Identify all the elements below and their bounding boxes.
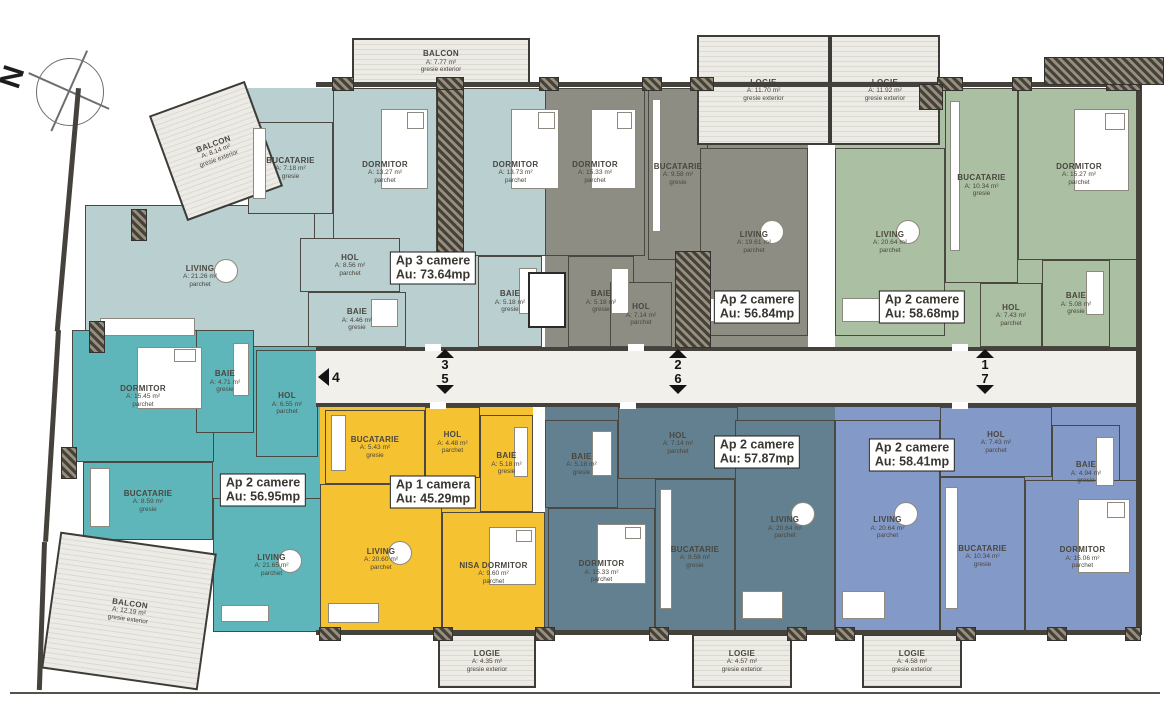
apartment-type-label: Ap 2 camere <box>720 293 794 307</box>
room-area: A: 11.70 m² <box>743 87 784 95</box>
balcon-room: BALCONA: 12.19 m²gresie exterior <box>41 532 217 691</box>
wall-pier <box>691 78 713 90</box>
kitchen-counter <box>950 101 961 252</box>
bathtub <box>592 431 612 476</box>
pillow <box>174 349 196 362</box>
kitchen-counter <box>90 468 109 527</box>
door-gap <box>952 344 968 351</box>
bucatarie-room: BUCATARIEA: 8.59 m²gresie <box>83 462 213 540</box>
wall-pier <box>438 90 463 253</box>
room-label: HOLA: 6.55 m²parchet <box>272 391 302 416</box>
arrow-left-icon <box>318 368 329 386</box>
wall-pier <box>62 448 76 478</box>
arrow-down-icon <box>976 385 994 394</box>
corridor-direction-marker: 4 <box>318 368 340 386</box>
room-label: BALCONA: 7.77 m²gresie exterior <box>421 49 462 74</box>
ground-line <box>10 692 1160 694</box>
room-label: HOLA: 4.48 m²parchet <box>437 430 467 455</box>
hol-room: HOLA: 8.56 m²parchet <box>300 238 400 292</box>
room-finish: gresie <box>342 324 372 332</box>
room-area: A: 4.46 m² <box>342 317 372 325</box>
room-area: A: 9.58 m² <box>654 171 703 179</box>
room-area: A: 8.56 m² <box>335 262 365 270</box>
bucatarie-room: BUCATARIEA: 5.43 m²gresie <box>325 410 425 484</box>
room-name: BAIE <box>342 307 372 316</box>
room-finish: parchet <box>663 448 693 456</box>
room-label: LOGIEA: 4.58 m²gresie exterior <box>892 649 933 674</box>
room-area: A: 11.92 m² <box>865 87 906 95</box>
bathtub <box>1096 437 1114 485</box>
pillow <box>625 527 642 540</box>
kitchen-counter <box>660 489 672 609</box>
room-finish: parchet <box>768 532 802 540</box>
room-name: BUCATARIE <box>957 173 1006 182</box>
sofa <box>100 318 196 336</box>
apartment-type-label: Ap 2 camere <box>226 476 300 490</box>
room-name: BALCON <box>193 132 234 155</box>
room-name: LIVING <box>183 264 217 273</box>
wall-pier <box>536 628 554 640</box>
room-name: BALCON <box>109 596 150 611</box>
pillow <box>516 530 532 542</box>
room-label: BALCONA: 12.19 m²gresie exterior <box>107 596 151 626</box>
room-finish: parchet <box>981 447 1011 455</box>
bathtub <box>233 343 249 396</box>
wall-pier <box>788 628 806 640</box>
pillow <box>407 112 423 129</box>
wall-pier <box>434 628 452 640</box>
room-name: LOGIE <box>892 649 933 658</box>
apartment-badge-ap3: Ap 3 camereAu: 73.64mp <box>390 252 476 285</box>
staircase-marker: 17 <box>976 349 994 394</box>
table <box>894 502 918 526</box>
staircase-number-down: 7 <box>981 372 988 386</box>
room-finish: parchet <box>437 447 467 455</box>
room-finish: parchet <box>364 564 398 572</box>
room-area: A: 7.14 m² <box>663 440 693 448</box>
pillow <box>1107 502 1125 517</box>
sofa <box>742 591 783 619</box>
room-finish: parchet <box>870 532 904 540</box>
wall-pier <box>1126 628 1140 640</box>
room-label: HOLA: 7.14 m²parchet <box>663 431 693 456</box>
room-finish: gresie <box>957 190 1006 198</box>
kitchen-counter <box>652 99 661 232</box>
apartment-area-label: Au: 45.29mp <box>396 492 470 506</box>
room-finish: gresie <box>654 179 703 187</box>
room-label: HOLA: 8.56 m²parchet <box>335 253 365 278</box>
baie-room: BAIEA: 5.08 m²gresie <box>1042 260 1110 347</box>
bathtub <box>611 268 629 314</box>
room-finish: parchet <box>183 281 217 289</box>
table <box>278 549 302 573</box>
logie-room: LOGIEA: 4.35 m²gresie exterior <box>438 634 536 688</box>
kitchen-counter <box>253 128 265 198</box>
baie-room: BAIEA: 4.46 m²gresie <box>308 292 406 347</box>
room-area: A: 5.43 m² <box>351 444 400 452</box>
room-name: BUCATARIE <box>671 545 720 554</box>
room-name: LOGIE <box>467 649 508 658</box>
apartment-badge-slate: Ap 2 camereAu: 57.87mp <box>714 436 800 469</box>
hol-room: HOLA: 7.43 m²parchet <box>980 283 1042 347</box>
room-name: HOL <box>996 303 1026 312</box>
dormitor-room: DORMITORA: 13.27 m²parchet <box>333 88 437 256</box>
bucatarie-room: BUCATARIEA: 7.18 m²gresie <box>248 122 333 214</box>
apartment-area-label: Au: 56.84mp <box>720 307 794 321</box>
exterior-wall-slanted <box>43 330 61 542</box>
door-gap <box>620 402 636 409</box>
apartment-type-label: Ap 1 camera <box>396 478 470 492</box>
room-finish: parchet <box>737 247 771 255</box>
room-label: BUCATARIEA: 5.43 m²gresie <box>351 435 400 460</box>
room-finish: parchet <box>626 319 656 327</box>
room-area: A: 20.64 m² <box>870 525 904 533</box>
sofa <box>328 603 378 622</box>
pillow <box>617 112 633 129</box>
bucatarie-room: BUCATARIEA: 10.34 m²gresie <box>940 477 1025 635</box>
apartment-type-label: Ap 2 camere <box>885 293 959 307</box>
wall-pier <box>540 78 558 90</box>
wall-pier <box>676 252 710 347</box>
apartment-area-label: Au: 58.68mp <box>885 307 959 321</box>
corridor-number: 4 <box>332 369 340 385</box>
dormitor-room: DORMITORA: 15.27 m²parchet <box>1018 88 1140 260</box>
room-name: HOL <box>437 430 467 439</box>
room-area: A: 21.26 m² <box>183 273 217 281</box>
kitchen-counter <box>331 415 346 471</box>
room-label: BALCONA: 8.14 m²gresie exterior <box>193 132 240 169</box>
room-name: BALCON <box>421 49 462 58</box>
wall-pier <box>650 628 668 640</box>
room-name: BUCATARIE <box>351 435 400 444</box>
bucatarie-room: BUCATARIEA: 9.58 m²gresie <box>655 479 735 635</box>
wall-pier <box>920 85 942 109</box>
dormitor-room: DORMITORA: 15.06 m²parchet <box>1025 480 1140 635</box>
room-area: A: 7.43 m² <box>981 439 1011 447</box>
dormitor-room: DORMITORA: 15.33 m²parchet <box>545 88 645 256</box>
room-area: A: 7.14 m² <box>626 312 656 320</box>
room-label: BUCATARIEA: 8.59 m²gresie <box>124 489 173 514</box>
room-label: LIVINGA: 21.26 m²parchet <box>183 264 217 289</box>
wall-pier <box>1013 78 1031 90</box>
room-finish: gresie <box>958 561 1007 569</box>
room-name: HOL <box>663 431 693 440</box>
bucatarie-room: BUCATARIEA: 10.34 m²gresie <box>945 88 1018 283</box>
floor-plan: N LIVINGA: 21.26 m²parchetBUCATARIEA: 7.… <box>0 0 1165 720</box>
apartment-badge-yellow: Ap 1 cameraAu: 45.29mp <box>390 476 476 509</box>
bathtub <box>1086 271 1104 315</box>
room-label: BUCATARIEA: 9.58 m²gresie <box>654 162 703 187</box>
baie-room: BAIEA: 4.71 m²gresie <box>196 330 254 433</box>
room-label: HOLA: 7.14 m²parchet <box>626 302 656 327</box>
wall-pier <box>333 78 353 90</box>
staircase-marker: 26 <box>669 349 687 394</box>
room-finish: gresie exterior <box>743 95 784 103</box>
logie-room: LOGIEA: 4.58 m²gresie exterior <box>862 634 962 688</box>
wall-pier <box>1048 628 1066 640</box>
bathtub <box>514 427 528 476</box>
room-name: HOL <box>981 430 1011 439</box>
room-name: HOL <box>272 391 302 400</box>
hol-room: HOLA: 6.55 m²parchet <box>256 350 318 457</box>
room-finish: gresie exterior <box>107 613 148 626</box>
door-gap <box>952 402 968 409</box>
room-name: BUCATARIE <box>958 544 1007 553</box>
wall-pier <box>957 628 975 640</box>
north-arrow-label: N <box>0 61 32 92</box>
bathtub <box>371 299 398 327</box>
room-finish: parchet <box>873 247 907 255</box>
wall-pier <box>320 628 340 640</box>
apartment-area-label: Au: 57.87mp <box>720 452 794 466</box>
logie-room: LOGIEA: 4.57 m²gresie exterior <box>692 634 792 688</box>
staircase-number-up: 3 <box>441 358 448 372</box>
room-name: BUCATARIE <box>124 489 173 498</box>
room-finish: gresie <box>351 452 400 460</box>
room-name: LOGIE <box>722 649 763 658</box>
room-area: A: 12.19 m² <box>108 605 149 618</box>
wall-pier <box>132 210 146 240</box>
room-finish: gresie exterior <box>892 666 933 674</box>
staircase-marker: 35 <box>436 349 454 394</box>
baie-room: BAIEA: 5.18 m²gresie <box>545 420 618 508</box>
apartment-area-label: Au: 56.95mp <box>226 490 300 504</box>
arrow-down-icon <box>669 385 687 394</box>
wall-pier <box>437 78 463 90</box>
room-area: A: 7.77 m² <box>421 59 462 67</box>
room-area: A: 4.58 m² <box>892 658 933 666</box>
wall-pier <box>836 628 854 640</box>
apartment-badge-gray: Ap 2 camereAu: 56.84mp <box>714 291 800 324</box>
hol-room: HOLA: 4.48 m²parchet <box>425 407 480 478</box>
room-name: HOL <box>335 253 365 262</box>
room-finish: gresie <box>124 506 173 514</box>
room-area: A: 4.35 m² <box>467 658 508 666</box>
room-finish: gresie exterior <box>421 66 462 74</box>
apartment-badge-teal: Ap 2 camereAu: 56.95mp <box>220 474 306 507</box>
pillow <box>538 112 554 129</box>
staircase-number-up: 1 <box>981 358 988 372</box>
room-label: HOLA: 7.43 m²parchet <box>981 430 1011 455</box>
sofa <box>221 605 269 622</box>
pillow <box>1105 113 1124 130</box>
door-gap <box>430 402 446 409</box>
kitchen-counter <box>945 487 957 609</box>
apartment-type-label: Ap 2 camere <box>720 438 794 452</box>
nisa-dormitor-room: NISA DORMITORA: 9.60 m²parchet <box>442 512 545 634</box>
room-finish: parchet <box>996 320 1026 328</box>
room-label: BUCATARIEA: 9.58 m²gresie <box>671 545 720 570</box>
wall-pier <box>643 78 661 90</box>
table <box>791 502 815 526</box>
logie-room: LOGIEA: 11.70 m²gresie exterior <box>697 35 830 145</box>
room-finish: gresie <box>671 562 720 570</box>
dormitor-room: DORMITORA: 15.33 m²parchet <box>548 508 655 635</box>
wall-pier <box>90 322 104 352</box>
room-finish: gresie exterior <box>722 666 763 674</box>
apartment-type-label: Ap 2 camere <box>875 441 949 455</box>
table <box>896 220 920 244</box>
room-area: A: 4.57 m² <box>722 658 763 666</box>
apartment-badge-green: Ap 2 camereAu: 58.68mp <box>879 291 965 324</box>
table <box>214 259 238 283</box>
room-name: HOL <box>626 302 656 311</box>
sofa <box>842 591 885 619</box>
room-finish: gresie exterior <box>199 149 240 170</box>
room-finish: parchet <box>272 408 302 416</box>
exterior-wall <box>1136 82 1142 635</box>
baie-room: BAIEA: 5.18 m²gresie <box>480 415 533 512</box>
room-label: BUCATARIEA: 10.34 m²gresie <box>957 173 1006 198</box>
room-finish: parchet <box>335 270 365 278</box>
room-area: A: 8.59 m² <box>124 498 173 506</box>
room-area: A: 7.43 m² <box>996 312 1026 320</box>
arrow-down-icon <box>436 385 454 394</box>
wall-pier <box>1045 58 1163 84</box>
elevator-shaft <box>528 272 566 328</box>
apartment-area-label: Au: 73.64mp <box>396 268 470 282</box>
table <box>760 220 784 244</box>
living-room: LIVINGA: 21.65 m²parchet <box>213 498 330 632</box>
hol-room: HOLA: 7.43 m²parchet <box>940 407 1052 477</box>
door-gap <box>628 344 644 351</box>
staircase-number-down: 6 <box>674 372 681 386</box>
staircase-number-down: 5 <box>441 372 448 386</box>
room-finish: gresie exterior <box>865 95 906 103</box>
room-area: A: 10.34 m² <box>957 183 1006 191</box>
apartment-type-label: Ap 3 camere <box>396 254 470 268</box>
apartment-area-label: Au: 58.41mp <box>875 455 949 469</box>
room-area: A: 10.34 m² <box>958 553 1007 561</box>
living-room: LIVINGA: 21.26 m²parchet <box>85 205 315 347</box>
room-area: A: 4.48 m² <box>437 440 467 448</box>
room-label: BUCATARIEA: 10.34 m²gresie <box>958 544 1007 569</box>
apartment-badge-blue: Ap 2 camereAu: 58.41mp <box>869 439 955 472</box>
room-label: HOLA: 7.43 m²parchet <box>996 303 1026 328</box>
staircase-number-up: 2 <box>674 358 681 372</box>
room-name: BUCATARIE <box>654 162 703 171</box>
room-finish: gresie exterior <box>467 666 508 674</box>
room-label: LOGIEA: 4.35 m²gresie exterior <box>467 649 508 674</box>
room-area: A: 20.64 m² <box>768 525 802 533</box>
room-label: BAIEA: 4.46 m²gresie <box>342 307 372 332</box>
room-area: A: 6.55 m² <box>272 401 302 409</box>
room-area: A: 9.58 m² <box>671 554 720 562</box>
table <box>388 541 412 565</box>
room-area: A: 8.14 m² <box>196 141 237 162</box>
room-label: LOGIEA: 4.57 m²gresie exterior <box>722 649 763 674</box>
